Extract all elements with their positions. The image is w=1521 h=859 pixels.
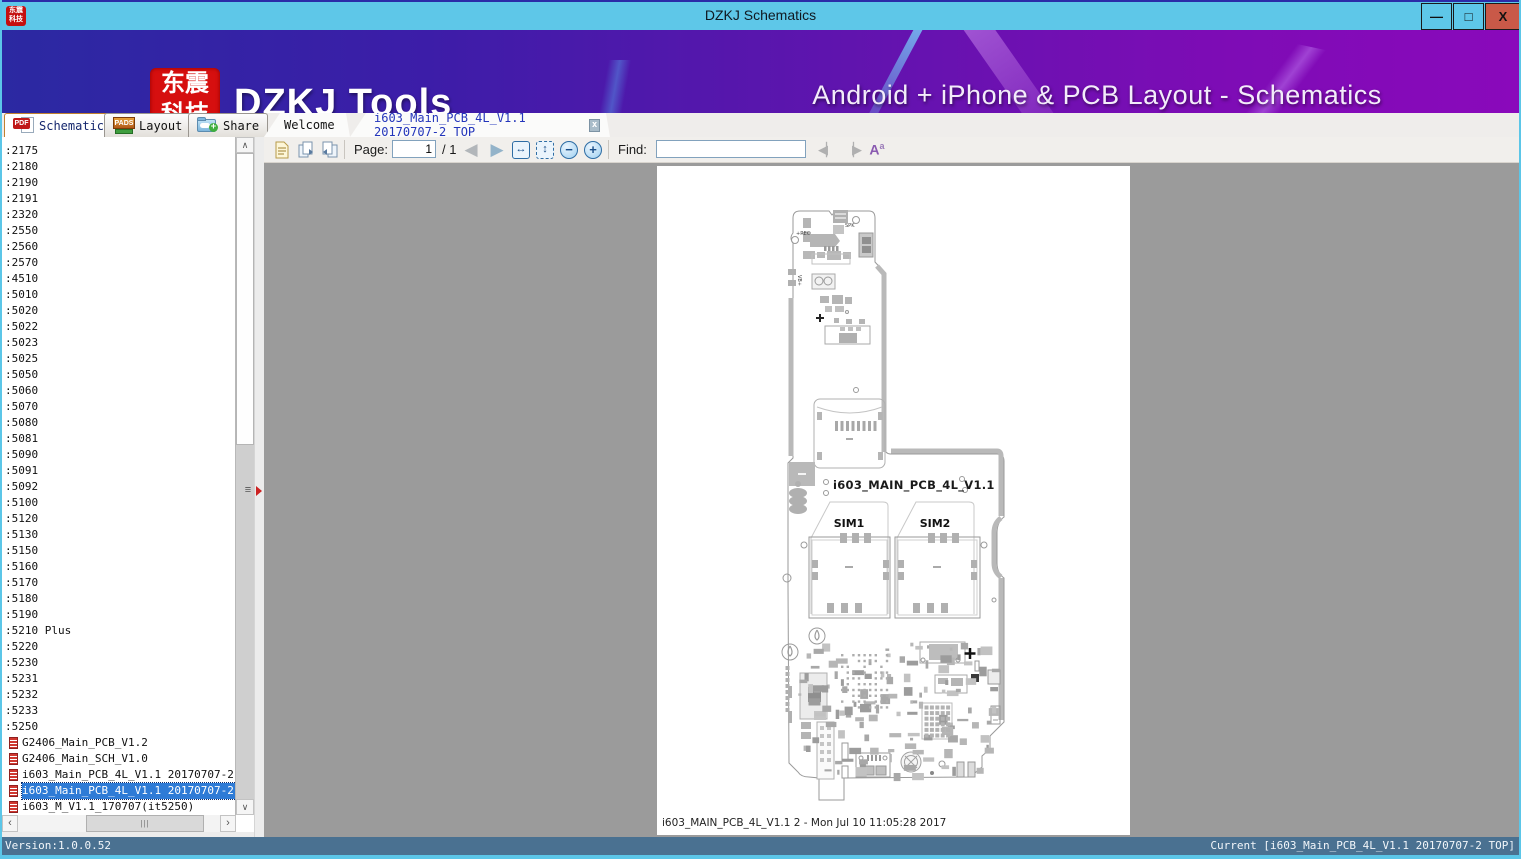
banner-tagline: Android + iPhone & PCB Layout - Schemati…	[772, 80, 1422, 111]
sidebar-item[interactable]: :5210 Plus	[2, 623, 235, 639]
sidebar-item-label: :2191	[5, 191, 38, 207]
sidebar-item-label: :2570	[5, 255, 38, 271]
sim2-socket: SIM2	[895, 517, 980, 618]
svg-text:VB+: VB+	[796, 275, 802, 286]
scroll-right-button[interactable]: ›	[220, 815, 236, 832]
tab-document[interactable]: i603_Main_PCB_4L_V1.1 20170707-2 TOP x	[350, 113, 610, 137]
sidebar-item-label: :5220	[5, 639, 38, 655]
sidebar-item-label: :5250	[5, 719, 38, 735]
pcb-top-components: SPK +REC VB+	[788, 210, 873, 393]
header-banner: 东震 科技 DZKJ Tools Android + iPhone & PCB …	[2, 30, 1519, 113]
brand-logo: 东震 科技	[150, 68, 220, 113]
splitter-collapse-icon[interactable]	[256, 486, 262, 496]
find-next-button[interactable]: ▕▶	[840, 139, 864, 160]
copy-page-forward-button[interactable]	[296, 139, 316, 160]
sidebar-item-label: :2190	[5, 175, 38, 191]
sidebar-item-label: :5233	[5, 703, 38, 719]
sidebar-item-label: G2406_Main_PCB_V1.2	[22, 735, 148, 751]
sidebar-item[interactable]: :5060	[2, 383, 235, 399]
scroll-down-button[interactable]: ∨	[236, 799, 254, 815]
fit-width-icon: ↔	[512, 141, 530, 159]
brand-logo-line2: 科技	[161, 100, 209, 113]
sidebar-item[interactable]: :5090	[2, 447, 235, 463]
sidebar-item-label: G2406_Main_SCH_V1.0	[22, 751, 148, 767]
fit-page-button[interactable]: ↕	[534, 139, 556, 160]
splitter-grip-icon[interactable]: ≡	[241, 484, 255, 496]
tab-welcome-label: Welcome	[284, 118, 335, 132]
sidebar-item[interactable]: :2320	[2, 207, 235, 223]
sidebar-item-label: :5025	[5, 351, 38, 367]
status-version: Version:1.0.0.52	[5, 837, 111, 855]
sidebar-item[interactable]: :5150	[2, 543, 235, 559]
status-current-file: Current [i603_Main_PCB_4L_V1.1 20170707-…	[1210, 837, 1515, 855]
sidebar-item-label: i603_Main_PCB_4L_V1.1 20170707-2 bot	[22, 767, 236, 783]
sidebar-item-label: :5170	[5, 575, 38, 591]
sidebar-item-label: :5081	[5, 431, 38, 447]
page-number-input[interactable]	[392, 140, 436, 158]
sidebar-item[interactable]: :5080	[2, 415, 235, 431]
sidebar-item-label: :5020	[5, 303, 38, 319]
share-folder-icon: +	[197, 117, 219, 134]
sidebar-item[interactable]: :5081	[2, 431, 235, 447]
sidebar-item-label: :5022	[5, 319, 38, 335]
match-case-icon: Aa	[869, 141, 884, 158]
zoom-in-button[interactable]: +	[582, 139, 604, 160]
banner-streak	[432, 60, 792, 113]
tab-schematic[interactable]: PDF Schematic	[4, 113, 113, 137]
sidebar-item-label: :5210 Plus	[5, 623, 71, 639]
sidebar-item[interactable]: :5020	[2, 303, 235, 319]
sidebar-item-label: :4510	[5, 271, 38, 287]
vertical-scroll-thumb[interactable]	[236, 153, 254, 445]
fit-page-icon: ↕	[536, 141, 554, 159]
board-title-row: i603_MAIN_PCB_4L_V1.1	[789, 462, 995, 514]
sidebar-item[interactable]: G2406_Main_PCB_V1.2	[2, 735, 235, 751]
tab-share-label: Share	[223, 119, 259, 133]
zoom-in-icon: +	[584, 141, 602, 159]
sidebar-vertical-scrollbar[interactable]: ∧ ∨	[236, 137, 254, 815]
sidebar-item-label: :5190	[5, 607, 38, 623]
sidebar-item[interactable]: :4510	[2, 271, 235, 287]
document-icon	[274, 141, 290, 159]
sidebar-item-label: :2180	[5, 159, 38, 175]
find-prev-button[interactable]: ◀▏	[814, 139, 838, 160]
pdf-icon: PDF	[13, 117, 35, 134]
panel-splitter[interactable]: ≡	[254, 137, 264, 837]
sidebar-item[interactable]: :2550	[2, 223, 235, 239]
sidebar-item-label: :5180	[5, 591, 38, 607]
sidebar-item[interactable]: :5180	[2, 591, 235, 607]
close-button[interactable]: X	[1485, 3, 1521, 30]
sidebar-item-label: :2560	[5, 239, 38, 255]
page-total: / 1	[442, 142, 456, 157]
sidebar-item[interactable]: :5100	[2, 495, 235, 511]
pdf-page[interactable]: SPK +REC VB+	[657, 166, 1130, 835]
sidebar-item-label: :2550	[5, 223, 38, 239]
sidebar-item[interactable]: :5190	[2, 607, 235, 623]
sidebar-item[interactable]: :2190	[2, 175, 235, 191]
sidebar-item[interactable]: :5070	[2, 399, 235, 415]
board-title-text: i603_MAIN_PCB_4L_V1.1	[833, 478, 995, 493]
sidebar-item-label: :5010	[5, 287, 38, 303]
svg-text:SIM2: SIM2	[920, 517, 951, 530]
sidebar-item-label: i603_M_V1.1_170707(it5250)	[22, 799, 194, 815]
sim1-socket: SIM1	[809, 517, 890, 618]
tabbar: PDF Schematic PADS Layout + Share Welcom…	[2, 113, 1519, 137]
sidebar-item-label: :2175	[5, 143, 38, 159]
find-input[interactable]	[656, 140, 806, 158]
tab-welcome[interactable]: Welcome	[264, 113, 350, 137]
horizontal-scroll-thumb[interactable]: |||	[86, 815, 204, 832]
maximize-button[interactable]: □	[1453, 3, 1484, 30]
sidebar-item[interactable]: :5160	[2, 559, 235, 575]
sidebar-horizontal-scrollbar[interactable]: ‹ ||| ›	[2, 815, 236, 832]
pages-forward-icon	[297, 141, 315, 159]
sidebar-item[interactable]: :5025	[2, 351, 235, 367]
page-label: Page:	[354, 142, 388, 157]
toolbar-separator	[608, 140, 609, 159]
sidebar-item[interactable]: :5010	[2, 287, 235, 303]
sidebar-item[interactable]: :5250	[2, 719, 235, 735]
sidebar-item[interactable]: :5220	[2, 639, 235, 655]
sidebar-item[interactable]: :5092	[2, 479, 235, 495]
sidebar-item[interactable]: :2180	[2, 159, 235, 175]
sidebar-item-label: :5050	[5, 367, 38, 383]
sidebar-item-label: :5060	[5, 383, 38, 399]
file-icon	[9, 737, 18, 749]
next-page-button[interactable]: ▶	[486, 139, 508, 160]
svg-text:SPK: SPK	[845, 223, 855, 229]
sidebar-item[interactable]: :5130	[2, 527, 235, 543]
tab-layout[interactable]: PADS Layout	[104, 113, 191, 137]
sidebar-item[interactable]: i603_M_V1.1_170707(it5250)	[2, 799, 235, 815]
sidebar-item[interactable]: i603_Main_PCB_4L_V1.1 20170707-2 bot	[2, 767, 235, 783]
file-icon	[9, 769, 18, 781]
svg-text:SIM1: SIM1	[834, 517, 865, 530]
pads-icon: PADS	[113, 117, 135, 134]
copy-page-back-button[interactable]	[320, 139, 340, 160]
brand-title: DZKJ Tools	[234, 82, 452, 113]
statusbar: Version:1.0.0.52 Current [i603_Main_PCB_…	[2, 837, 1519, 855]
sidebar-item[interactable]: :2570	[2, 255, 235, 271]
fit-width-button[interactable]: ↔	[510, 139, 532, 160]
sidebar-item[interactable]: :5023	[2, 335, 235, 351]
new-page-button[interactable]	[272, 139, 292, 160]
zoom-out-icon: −	[560, 141, 578, 159]
sidebar-item[interactable]: :5233	[2, 703, 235, 719]
window-title: DZKJ Schematics	[2, 7, 1519, 23]
sidebar-item-label: :5230	[5, 655, 38, 671]
page-caption-text: i603_MAIN_PCB_4L_V1.1 2 - Mon Jul 10 11:…	[662, 817, 946, 829]
viewer-toolbar: Page: / 1 ◀ ▶ ↔ ↕ − + Find: ◀▏ ▕▶ Aa	[264, 137, 1521, 163]
prev-page-button[interactable]: ◀	[460, 139, 482, 160]
sidebar: :2175:2180:2190:2191:2320:2550:2560:2570…	[2, 137, 254, 837]
sidebar-item[interactable]: :5231	[2, 671, 235, 687]
file-icon	[9, 801, 18, 813]
sidebar-item-label: :5130	[5, 527, 38, 543]
scroll-up-button[interactable]: ∧	[236, 137, 254, 153]
sidebar-item[interactable]: :5120	[2, 511, 235, 527]
sidebar-item-label: :5100	[5, 495, 38, 511]
sidebar-item-label: :5231	[5, 671, 38, 687]
sidebar-item-label: :5023	[5, 335, 38, 351]
sidebar-item[interactable]: :5022	[2, 319, 235, 335]
titlebar: 东震 科技 DZKJ Schematics — □ X	[2, 0, 1519, 30]
tab-document-label: i603_Main_PCB_4L_V1.1 20170707-2 TOP	[374, 111, 584, 139]
find-label: Find:	[618, 142, 647, 157]
sidebar-item-label: i603_Main_PCB_4L_V1.1 20170707-2 TOP	[22, 783, 236, 799]
tab-share[interactable]: + Share	[188, 113, 268, 137]
sd-card-connector	[814, 399, 885, 468]
match-case-button[interactable]: Aa	[866, 139, 888, 160]
sidebar-item-label: :5232	[5, 687, 38, 703]
sidebar-item-label: :5090	[5, 447, 38, 463]
sidebar-item[interactable]: :5050	[2, 367, 235, 383]
toolbar-separator	[344, 140, 345, 159]
viewer-canvas[interactable]: SPK +REC VB+	[264, 163, 1521, 837]
sidebar-item[interactable]: :2560	[2, 239, 235, 255]
sidebar-item[interactable]: :5170	[2, 575, 235, 591]
tab-close-icon[interactable]: x	[589, 119, 600, 132]
minimize-button[interactable]: —	[1421, 3, 1452, 30]
pages-back-icon	[321, 141, 339, 159]
sidebar-list: :2175:2180:2190:2191:2320:2550:2560:2570…	[2, 137, 236, 815]
pcb-drawing: SPK +REC VB+	[657, 166, 1130, 835]
sidebar-item[interactable]: i603_Main_PCB_4L_V1.1 20170707-2 TOP	[2, 783, 235, 799]
sidebar-item-label: :5160	[5, 559, 38, 575]
sidebar-item-label: :5092	[5, 479, 38, 495]
sidebar-item[interactable]: :2191	[2, 191, 235, 207]
tab-layout-label: Layout	[139, 119, 182, 133]
sidebar-item[interactable]: :5232	[2, 687, 235, 703]
app-window: 东震 科技 DZKJ Schematics — □ X 东震 科技 DZKJ T…	[0, 0, 1521, 859]
tab-schematic-label: Schematic	[39, 119, 104, 133]
sidebar-item[interactable]: G2406_Main_SCH_V1.0	[2, 751, 235, 767]
sidebar-item[interactable]: :5230	[2, 655, 235, 671]
scroll-left-button[interactable]: ‹	[2, 815, 18, 832]
sidebar-item-label: :2320	[5, 207, 38, 223]
sidebar-item-label: :5120	[5, 511, 38, 527]
sidebar-item-label: :5150	[5, 543, 38, 559]
sidebar-item[interactable]: :5091	[2, 463, 235, 479]
window-bottom-edge	[2, 855, 1519, 859]
sidebar-item[interactable]: :2175	[2, 143, 235, 159]
brand-logo-line1: 东震	[161, 69, 209, 97]
sidebar-item-label: :5080	[5, 415, 38, 431]
zoom-out-button[interactable]: −	[558, 139, 580, 160]
svg-text:+REC: +REC	[796, 231, 811, 237]
sidebar-item-label: :5070	[5, 399, 38, 415]
file-icon	[9, 785, 18, 797]
sidebar-item-label: :5091	[5, 463, 38, 479]
file-icon	[9, 753, 18, 765]
